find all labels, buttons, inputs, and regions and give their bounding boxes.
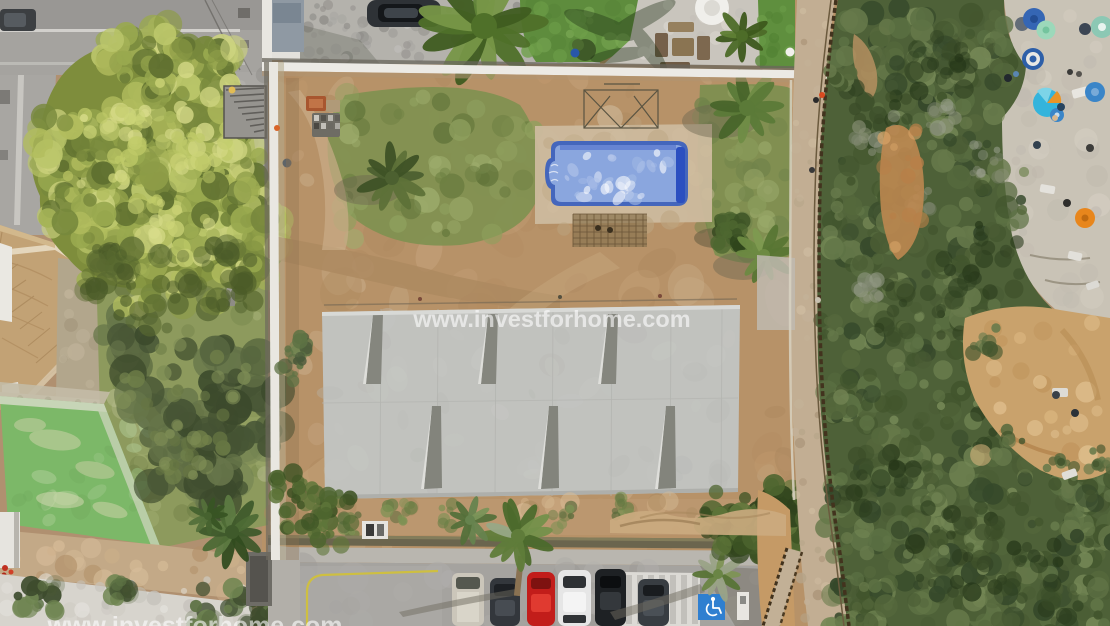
svg-text:www.investforhome.com: www.investforhome.com (47, 612, 343, 626)
svg-text:www.investforhome.com: www.investforhome.com (412, 306, 690, 332)
